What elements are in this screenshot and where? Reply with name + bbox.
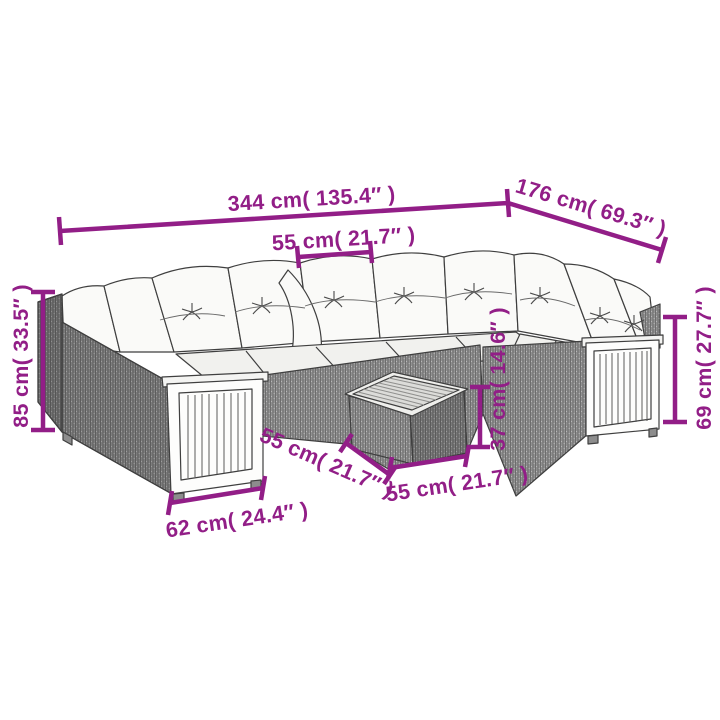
- dimension-label-arm-panel-width: 62 cm( 24.4″ ): [164, 498, 310, 543]
- dimension-label-arm-height: 69 cm( 27.7″ ): [692, 286, 716, 430]
- dimension-label-total-depth: 176 cm( 69.3″ ): [513, 174, 669, 241]
- dimension-label-back-height: 85 cm( 33.5″ ): [9, 284, 33, 428]
- dimension-label-table-width: 55 cm( 21.7″ ): [384, 462, 530, 507]
- dimension-label-table-height: 37 cm( 14.6″ ): [486, 307, 510, 451]
- product-dimension-diagram: 344 cm( 135.4″ ) 176 cm( 69.3″ ) 55 cm( …: [0, 0, 720, 720]
- right-arm-panel: [582, 335, 663, 444]
- diagram-canvas: 344 cm( 135.4″ ) 176 cm( 69.3″ ) 55 cm( …: [0, 0, 720, 720]
- dimension-line-arm-height: [663, 317, 687, 422]
- dimension-label-seat-width: 55 cm( 21.7″ ): [271, 223, 416, 256]
- table: [345, 372, 468, 464]
